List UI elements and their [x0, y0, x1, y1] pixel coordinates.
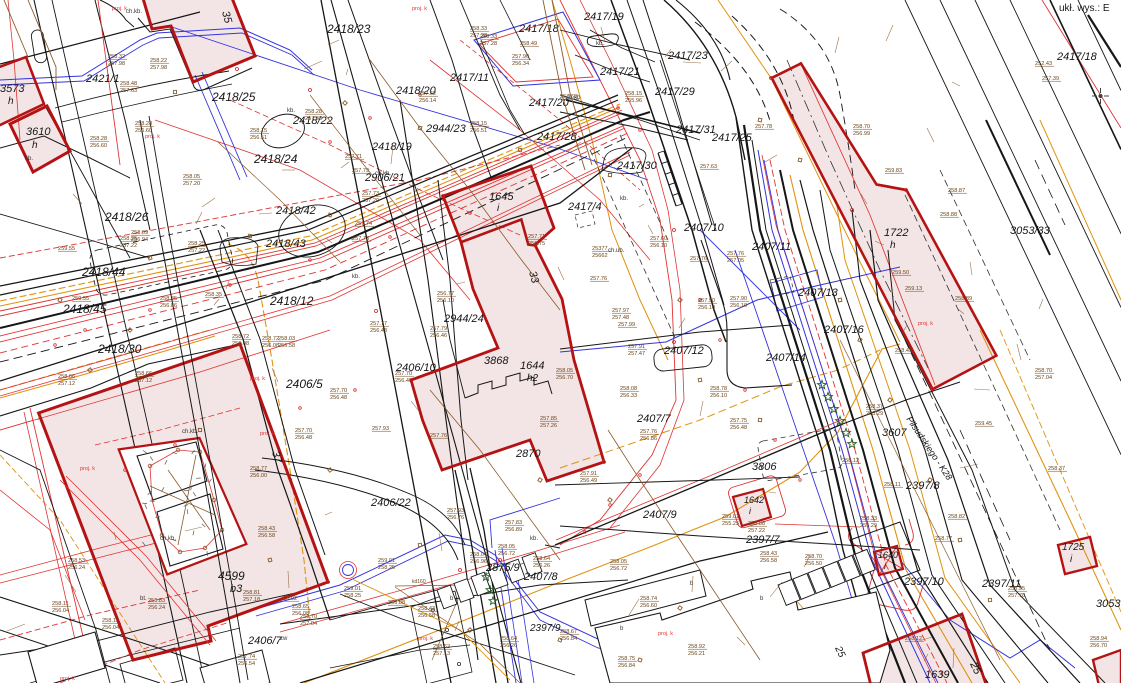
svg-text:25662: 25662: [592, 253, 608, 259]
svg-text:256.04: 256.04: [102, 625, 119, 631]
svg-text:256.48: 256.48: [330, 395, 347, 401]
svg-text:proj. k: proj. k: [60, 676, 75, 682]
svg-text:1642: 1642: [744, 495, 764, 505]
svg-text:2417/18: 2417/18: [518, 23, 560, 35]
svg-text:2407/12: 2407/12: [663, 345, 704, 357]
svg-text:256.26: 256.26: [533, 563, 550, 569]
svg-text:2418/12: 2418/12: [269, 294, 314, 308]
svg-text:2418/30: 2418/30: [97, 342, 142, 356]
svg-text:proj. k: proj. k: [145, 134, 160, 140]
svg-text:257.20: 257.20: [183, 181, 200, 187]
svg-text:2397/7: 2397/7: [745, 534, 781, 546]
svg-text:1725: 1725: [1062, 542, 1085, 553]
svg-text:256.84: 256.84: [618, 663, 635, 669]
svg-text:proj. k: proj. k: [412, 6, 427, 12]
svg-text:2418/25: 2418/25: [211, 90, 256, 104]
svg-text:2407/11: 2407/11: [751, 241, 791, 253]
svg-text:proj. k: proj. k: [260, 431, 275, 437]
svg-text:256.54: 256.54: [238, 661, 255, 667]
svg-text:3573: 3573: [0, 83, 25, 95]
svg-text:2944/23: 2944/23: [425, 123, 467, 135]
svg-text:257.98: 257.98: [108, 61, 125, 67]
svg-text:2417/23: 2417/23: [667, 50, 709, 62]
svg-text:3053: 3053: [1096, 598, 1121, 610]
svg-text:3868: 3868: [484, 355, 509, 367]
svg-text:2406/5: 2406/5: [285, 377, 323, 391]
svg-text:256.10: 256.10: [437, 298, 454, 304]
svg-text:1722: 1722: [884, 227, 908, 239]
svg-text:256.10: 256.10: [650, 243, 667, 249]
svg-text:2418/24: 2418/24: [253, 152, 298, 166]
svg-text:2417/31: 2417/31: [675, 124, 716, 136]
svg-text:256.60: 256.60: [640, 603, 657, 609]
svg-text:proj. k: proj. k: [918, 321, 933, 327]
svg-text:256.60: 256.60: [135, 128, 152, 134]
svg-text:kb.: kb.: [352, 274, 360, 280]
svg-text:2397/10: 2397/10: [903, 576, 945, 588]
svg-text:1639: 1639: [925, 669, 949, 681]
svg-text:257.63: 257.63: [120, 88, 137, 94]
svg-text:257.48: 257.48: [612, 315, 629, 321]
svg-text:h2: h2: [527, 373, 539, 384]
svg-text:257.28: 257.28: [480, 41, 497, 47]
svg-text:257.22: 257.22: [120, 243, 137, 249]
svg-text:256.99: 256.99: [853, 131, 870, 137]
svg-text:256.70: 256.70: [556, 375, 573, 381]
svg-text:2417/25: 2417/25: [711, 132, 753, 144]
svg-text:kb.: kb.: [287, 108, 295, 114]
svg-text:ukł. wys.: E: ukł. wys.: E: [1059, 3, 1110, 14]
svg-text:2407/7: 2407/7: [636, 413, 672, 425]
svg-text:2875/9: 2875/9: [485, 562, 520, 574]
svg-text:256.48: 256.48: [395, 378, 412, 384]
svg-text:256.75: 256.75: [528, 241, 545, 247]
svg-text:256.04: 256.04: [52, 608, 69, 614]
svg-text:256.34: 256.34: [512, 61, 529, 67]
svg-text:2397/8: 2397/8: [905, 480, 941, 492]
svg-text:3053/33: 3053/33: [1010, 225, 1051, 237]
svg-text:bt.: bt.: [140, 596, 147, 602]
svg-text:4599: 4599: [218, 569, 245, 583]
svg-text:2406/7: 2406/7: [247, 635, 283, 647]
svg-text:255.29: 255.29: [866, 411, 883, 417]
svg-text:2418/26: 2418/26: [104, 210, 149, 224]
svg-text:b3: b3: [230, 583, 243, 595]
svg-text:257.28: 257.28: [470, 33, 487, 39]
svg-text:1640: 1640: [878, 550, 898, 560]
svg-text:256.84: 256.84: [560, 636, 577, 642]
svg-text:proj. k: proj. k: [80, 466, 95, 472]
svg-text:2417/18: 2417/18: [1056, 51, 1098, 63]
svg-text:h: h: [8, 96, 14, 107]
svg-text:256.33: 256.33: [620, 393, 637, 399]
svg-text:3610: 3610: [26, 126, 51, 138]
svg-text:256.50: 256.50: [805, 561, 822, 567]
svg-text:kb.: kb.: [596, 41, 604, 47]
svg-text:256.24: 256.24: [148, 605, 165, 611]
svg-text:256.10: 256.10: [730, 303, 747, 309]
svg-text:255.96: 255.96: [625, 98, 642, 104]
svg-text:257.20: 257.20: [362, 198, 379, 204]
svg-text:256.21: 256.21: [688, 651, 705, 657]
svg-text:h: h: [32, 140, 38, 151]
svg-text:256.58: 256.58: [258, 533, 275, 539]
svg-text:256.26: 256.26: [500, 643, 517, 649]
svg-text:2397/9: 2397/9: [529, 623, 561, 634]
svg-text:zw: zw: [280, 636, 288, 642]
svg-text:256.70: 256.70: [1090, 643, 1107, 649]
svg-text:257.70: 257.70: [1008, 593, 1025, 599]
svg-text:proj. k: proj. k: [112, 6, 127, 12]
svg-text:257.22: 257.22: [748, 528, 765, 534]
svg-text:255.25: 255.25: [722, 521, 739, 527]
svg-text:256.89: 256.89: [505, 527, 522, 533]
svg-text:257.22: 257.22: [188, 248, 205, 254]
svg-text:proj. k: proj. k: [658, 631, 673, 637]
svg-text:256.51: 256.51: [470, 128, 487, 134]
svg-text:kd160: kd160: [412, 579, 426, 585]
svg-text:257.12: 257.12: [58, 381, 75, 387]
svg-text:256.00: 256.00: [250, 473, 267, 479]
svg-text:2407/16: 2407/16: [823, 324, 865, 336]
svg-text:proj. k: proj. k: [250, 376, 265, 382]
svg-text:256.08: 256.08: [232, 341, 249, 347]
svg-text:2417/29: 2417/29: [654, 86, 695, 98]
svg-text:ch.kb.: ch.kb.: [375, 171, 391, 177]
svg-text:256.76: 256.76: [447, 515, 464, 521]
svg-text:2418/19: 2418/19: [371, 141, 412, 153]
svg-text:3607: 3607: [882, 427, 907, 439]
svg-text:256.14: 256.14: [419, 98, 436, 104]
svg-text:ch.kb.: ch.kb.: [160, 536, 176, 542]
svg-text:2407/13: 2407/13: [797, 287, 839, 299]
svg-text:h: h: [890, 240, 896, 251]
svg-text:2418/45: 2418/45: [62, 302, 107, 316]
svg-text:258.25: 258.25: [378, 565, 395, 571]
svg-text:2407/8: 2407/8: [523, 571, 559, 583]
svg-text:258.25: 258.25: [344, 593, 361, 599]
svg-text:257.38: 257.38: [305, 116, 322, 122]
svg-text:2418/44: 2418/44: [81, 265, 126, 279]
svg-text:256.60: 256.60: [90, 143, 107, 149]
svg-text:2870: 2870: [515, 448, 541, 460]
svg-text:256.58: 256.58: [278, 343, 295, 349]
svg-text:proj. k: proj. k: [418, 636, 433, 642]
svg-text:2407/14: 2407/14: [765, 352, 806, 364]
svg-text:kb.: kb.: [25, 156, 33, 162]
svg-text:2417/21: 2417/21: [599, 66, 640, 78]
svg-text:2418/42: 2418/42: [275, 205, 316, 217]
svg-text:2406/22: 2406/22: [370, 497, 411, 509]
svg-text:257.47: 257.47: [628, 351, 645, 357]
svg-text:257.12: 257.12: [135, 378, 152, 384]
svg-text:kb.: kb.: [530, 536, 538, 542]
svg-text:256.49: 256.49: [580, 478, 597, 484]
svg-text:256.10: 256.10: [710, 393, 727, 399]
svg-text:256.48: 256.48: [730, 425, 747, 431]
svg-text:2407/9: 2407/9: [642, 509, 677, 521]
svg-text:2421/1: 2421/1: [85, 73, 120, 85]
svg-text:257.26: 257.26: [540, 423, 557, 429]
svg-text:255.29: 255.29: [860, 523, 877, 529]
svg-text:256.43: 256.43: [370, 328, 387, 334]
svg-text:256.58: 256.58: [760, 558, 777, 564]
svg-text:3806: 3806: [752, 461, 777, 473]
svg-text:257.04: 257.04: [1035, 375, 1052, 381]
svg-text:257.18: 257.18: [243, 597, 260, 603]
svg-text:2417/11: 2417/11: [449, 72, 489, 84]
svg-text:256.86: 256.86: [160, 303, 177, 309]
svg-text:ch.kb.: ch.kb.: [126, 9, 142, 15]
svg-text:ch.kb.: ch.kb.: [182, 429, 198, 435]
svg-text:257.05: 257.05: [727, 258, 744, 264]
svg-text:2417/19: 2417/19: [583, 11, 624, 23]
svg-text:kb.: kb.: [620, 196, 628, 202]
svg-text:2418/23: 2418/23: [326, 22, 371, 36]
svg-text:256.08: 256.08: [262, 343, 279, 349]
svg-text:257.04: 257.04: [300, 621, 317, 627]
svg-text:2944/24: 2944/24: [443, 313, 484, 325]
svg-text:257.98: 257.98: [150, 65, 167, 71]
svg-text:1645: 1645: [489, 191, 514, 203]
svg-text:256.96: 256.96: [470, 559, 487, 565]
svg-text:256.46: 256.46: [430, 333, 447, 339]
svg-text:2407/10: 2407/10: [683, 222, 725, 234]
svg-text:256.24: 256.24: [68, 565, 85, 571]
svg-text:256.48: 256.48: [295, 435, 312, 441]
svg-text:2417/28: 2417/28: [536, 131, 578, 143]
svg-text:256.72: 256.72: [610, 566, 627, 572]
svg-text:2418/43: 2418/43: [265, 238, 307, 250]
svg-text:256.58: 256.58: [418, 613, 435, 619]
svg-text:2417/30: 2417/30: [616, 160, 658, 172]
svg-text:2417/4: 2417/4: [567, 201, 602, 213]
svg-text:256.86: 256.86: [640, 436, 657, 442]
svg-text:256.10: 256.10: [698, 305, 715, 311]
svg-text:256.51: 256.51: [250, 135, 267, 141]
svg-text:257.13: 257.13: [433, 651, 450, 657]
svg-text:256.72: 256.72: [498, 551, 515, 557]
svg-text:1644: 1644: [520, 360, 544, 372]
